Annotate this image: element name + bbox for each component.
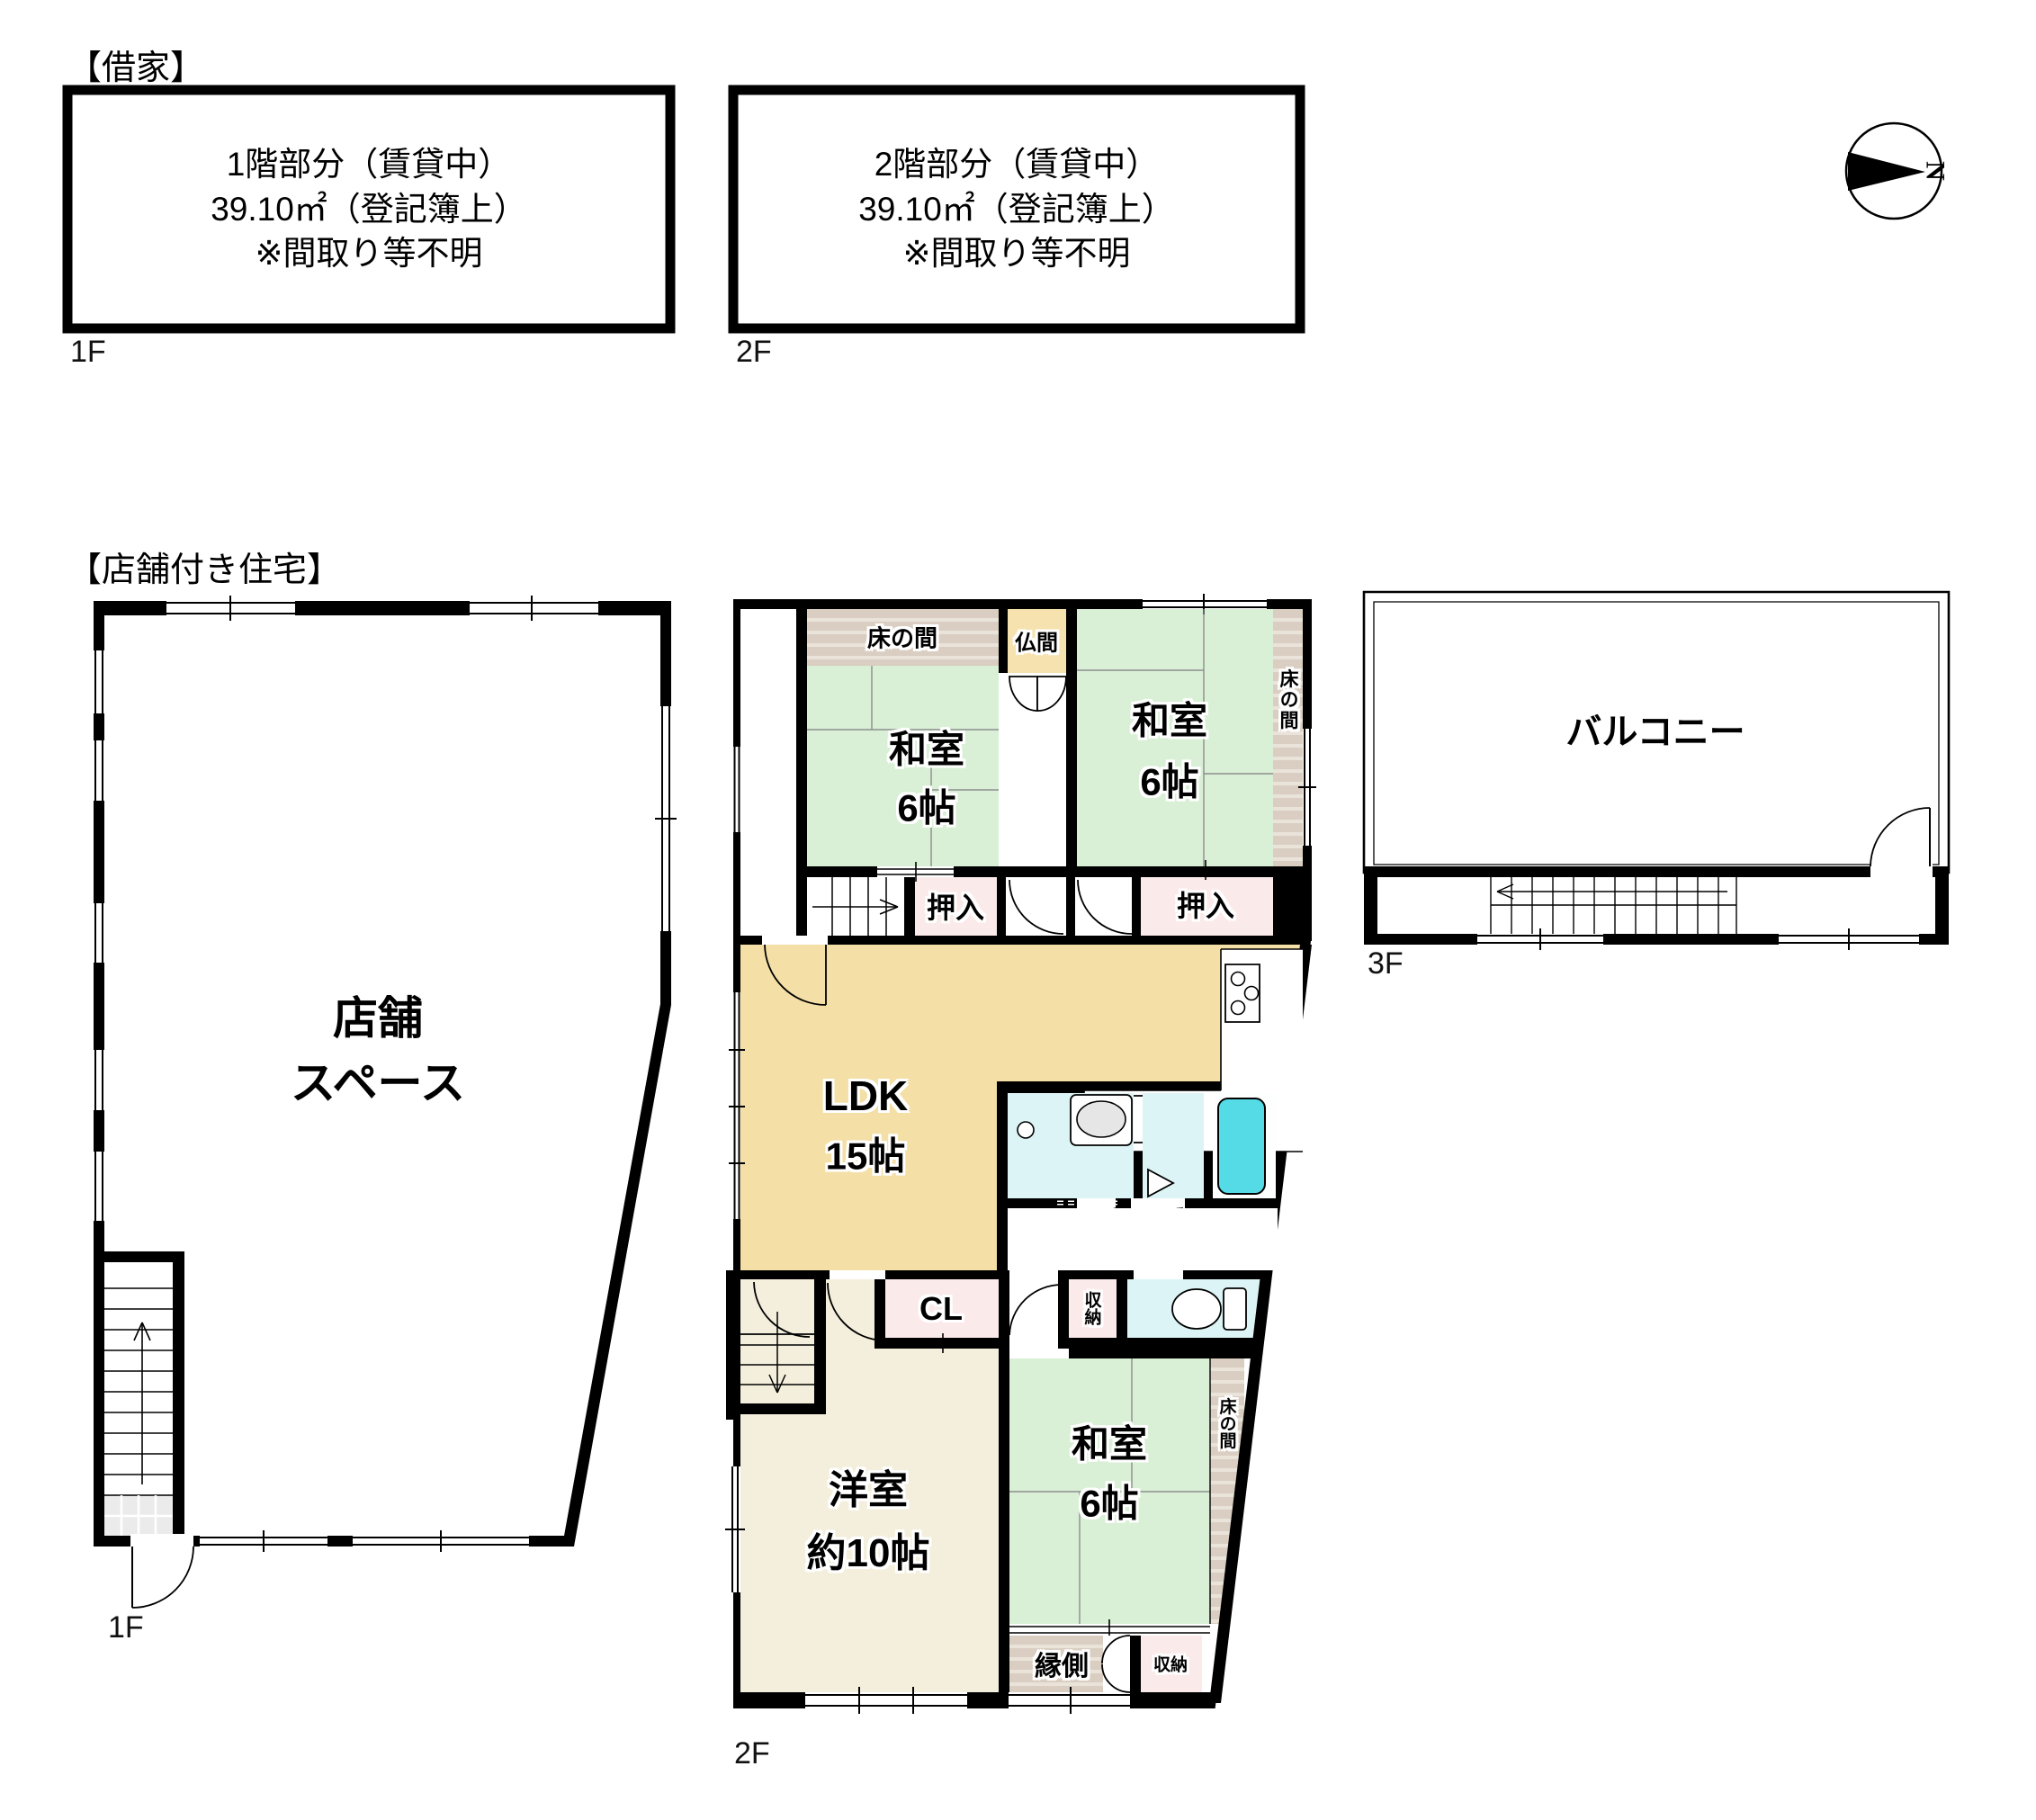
oshiire-left-label: 押入	[927, 885, 984, 927]
floor3-windows	[1477, 928, 1919, 950]
tokonoma-right-fill	[1273, 609, 1303, 866]
tokonoma-right-label: 床の間	[1274, 669, 1301, 731]
shop-house-section-title: 【店舗付き住宅】	[67, 542, 341, 591]
floor2-floor-label: 2F	[734, 1736, 770, 1771]
shop-space-label-line2: スペース	[291, 1047, 465, 1112]
washitsu-s-name: 和室	[1072, 1414, 1147, 1469]
washitsu-nw-name: 和室	[889, 720, 964, 775]
rental-unit-2f-text: 2階部分（賃貸中） 39.10㎡（登記簿上） ※間取り等不明	[743, 100, 1290, 318]
shop-entrance-door	[130, 1534, 193, 1608]
shop-stairs	[94, 1251, 184, 1547]
rental-1f-floor-label: 1F	[70, 335, 106, 370]
balcony-label: バルコニー	[1565, 703, 1745, 755]
washitsu-nw-size: 6帖	[897, 778, 955, 833]
closet-cl-label: CL	[919, 1290, 963, 1328]
rental-1f-line2: 39.10㎡（登記簿上）	[211, 187, 527, 232]
oshiire-right-label: 押入	[1177, 883, 1234, 925]
floor3-stairs	[1491, 877, 1736, 934]
storage-south-label: 収納	[1153, 1652, 1188, 1676]
ldk-size: 15帖	[826, 1126, 906, 1181]
yoshitsu-size: 約10帖	[807, 1520, 930, 1578]
tokonoma-top-label: 床の間	[867, 621, 937, 654]
washitsu-ne-size: 6帖	[1140, 752, 1198, 807]
rental-unit-1f-text: 1階部分（賃貸中） 39.10㎡（登記簿上） ※間取り等不明	[77, 100, 660, 318]
shop-1f-floor-label: 1F	[108, 1610, 144, 1645]
toilet-room-fill	[1127, 1279, 1264, 1338]
engawa-label: 縁側	[1035, 1644, 1089, 1683]
rental-2f-line2: 39.10㎡（登記簿上）	[858, 187, 1175, 232]
floor2-stairs-up	[812, 877, 898, 936]
yoshitsu-name: 洋室	[829, 1457, 908, 1515]
ldk-name: LDK	[823, 1071, 909, 1120]
washitsu-ne-name: 和室	[1132, 691, 1207, 746]
storage-mid-label: 収納	[1080, 1291, 1104, 1325]
floorplan-canvas: N	[0, 0, 2036, 1820]
rental-1f-line1: 1階部分（賃貸中）	[227, 142, 512, 187]
entry-tile	[104, 1495, 173, 1536]
rental-2f-line1: 2階部分（賃貸中）	[874, 142, 1160, 187]
floor3-floor-label: 3F	[1368, 946, 1404, 982]
shop-space-label-line1: 店舗	[333, 982, 423, 1047]
compass-icon: N	[1846, 123, 1951, 219]
rental-section-title: 【借家】	[67, 40, 204, 89]
rental-1f-line3: ※間取り等不明	[255, 231, 482, 276]
compass-north-label: N	[1921, 161, 1951, 181]
washitsu-s-size: 6帖	[1080, 1474, 1138, 1529]
rental-2f-line3: ※間取り等不明	[902, 231, 1130, 276]
tokonoma-south-label: 床の間	[1215, 1398, 1239, 1449]
butsuma-label: 仏間	[1015, 625, 1058, 657]
rental-2f-floor-label: 2F	[736, 335, 772, 370]
floor3-stair-section	[1364, 808, 1949, 950]
stairs-up-arrow	[134, 1322, 150, 1484]
stairs-left-arrow	[1497, 884, 1727, 899]
balcony-door	[1870, 808, 1933, 879]
